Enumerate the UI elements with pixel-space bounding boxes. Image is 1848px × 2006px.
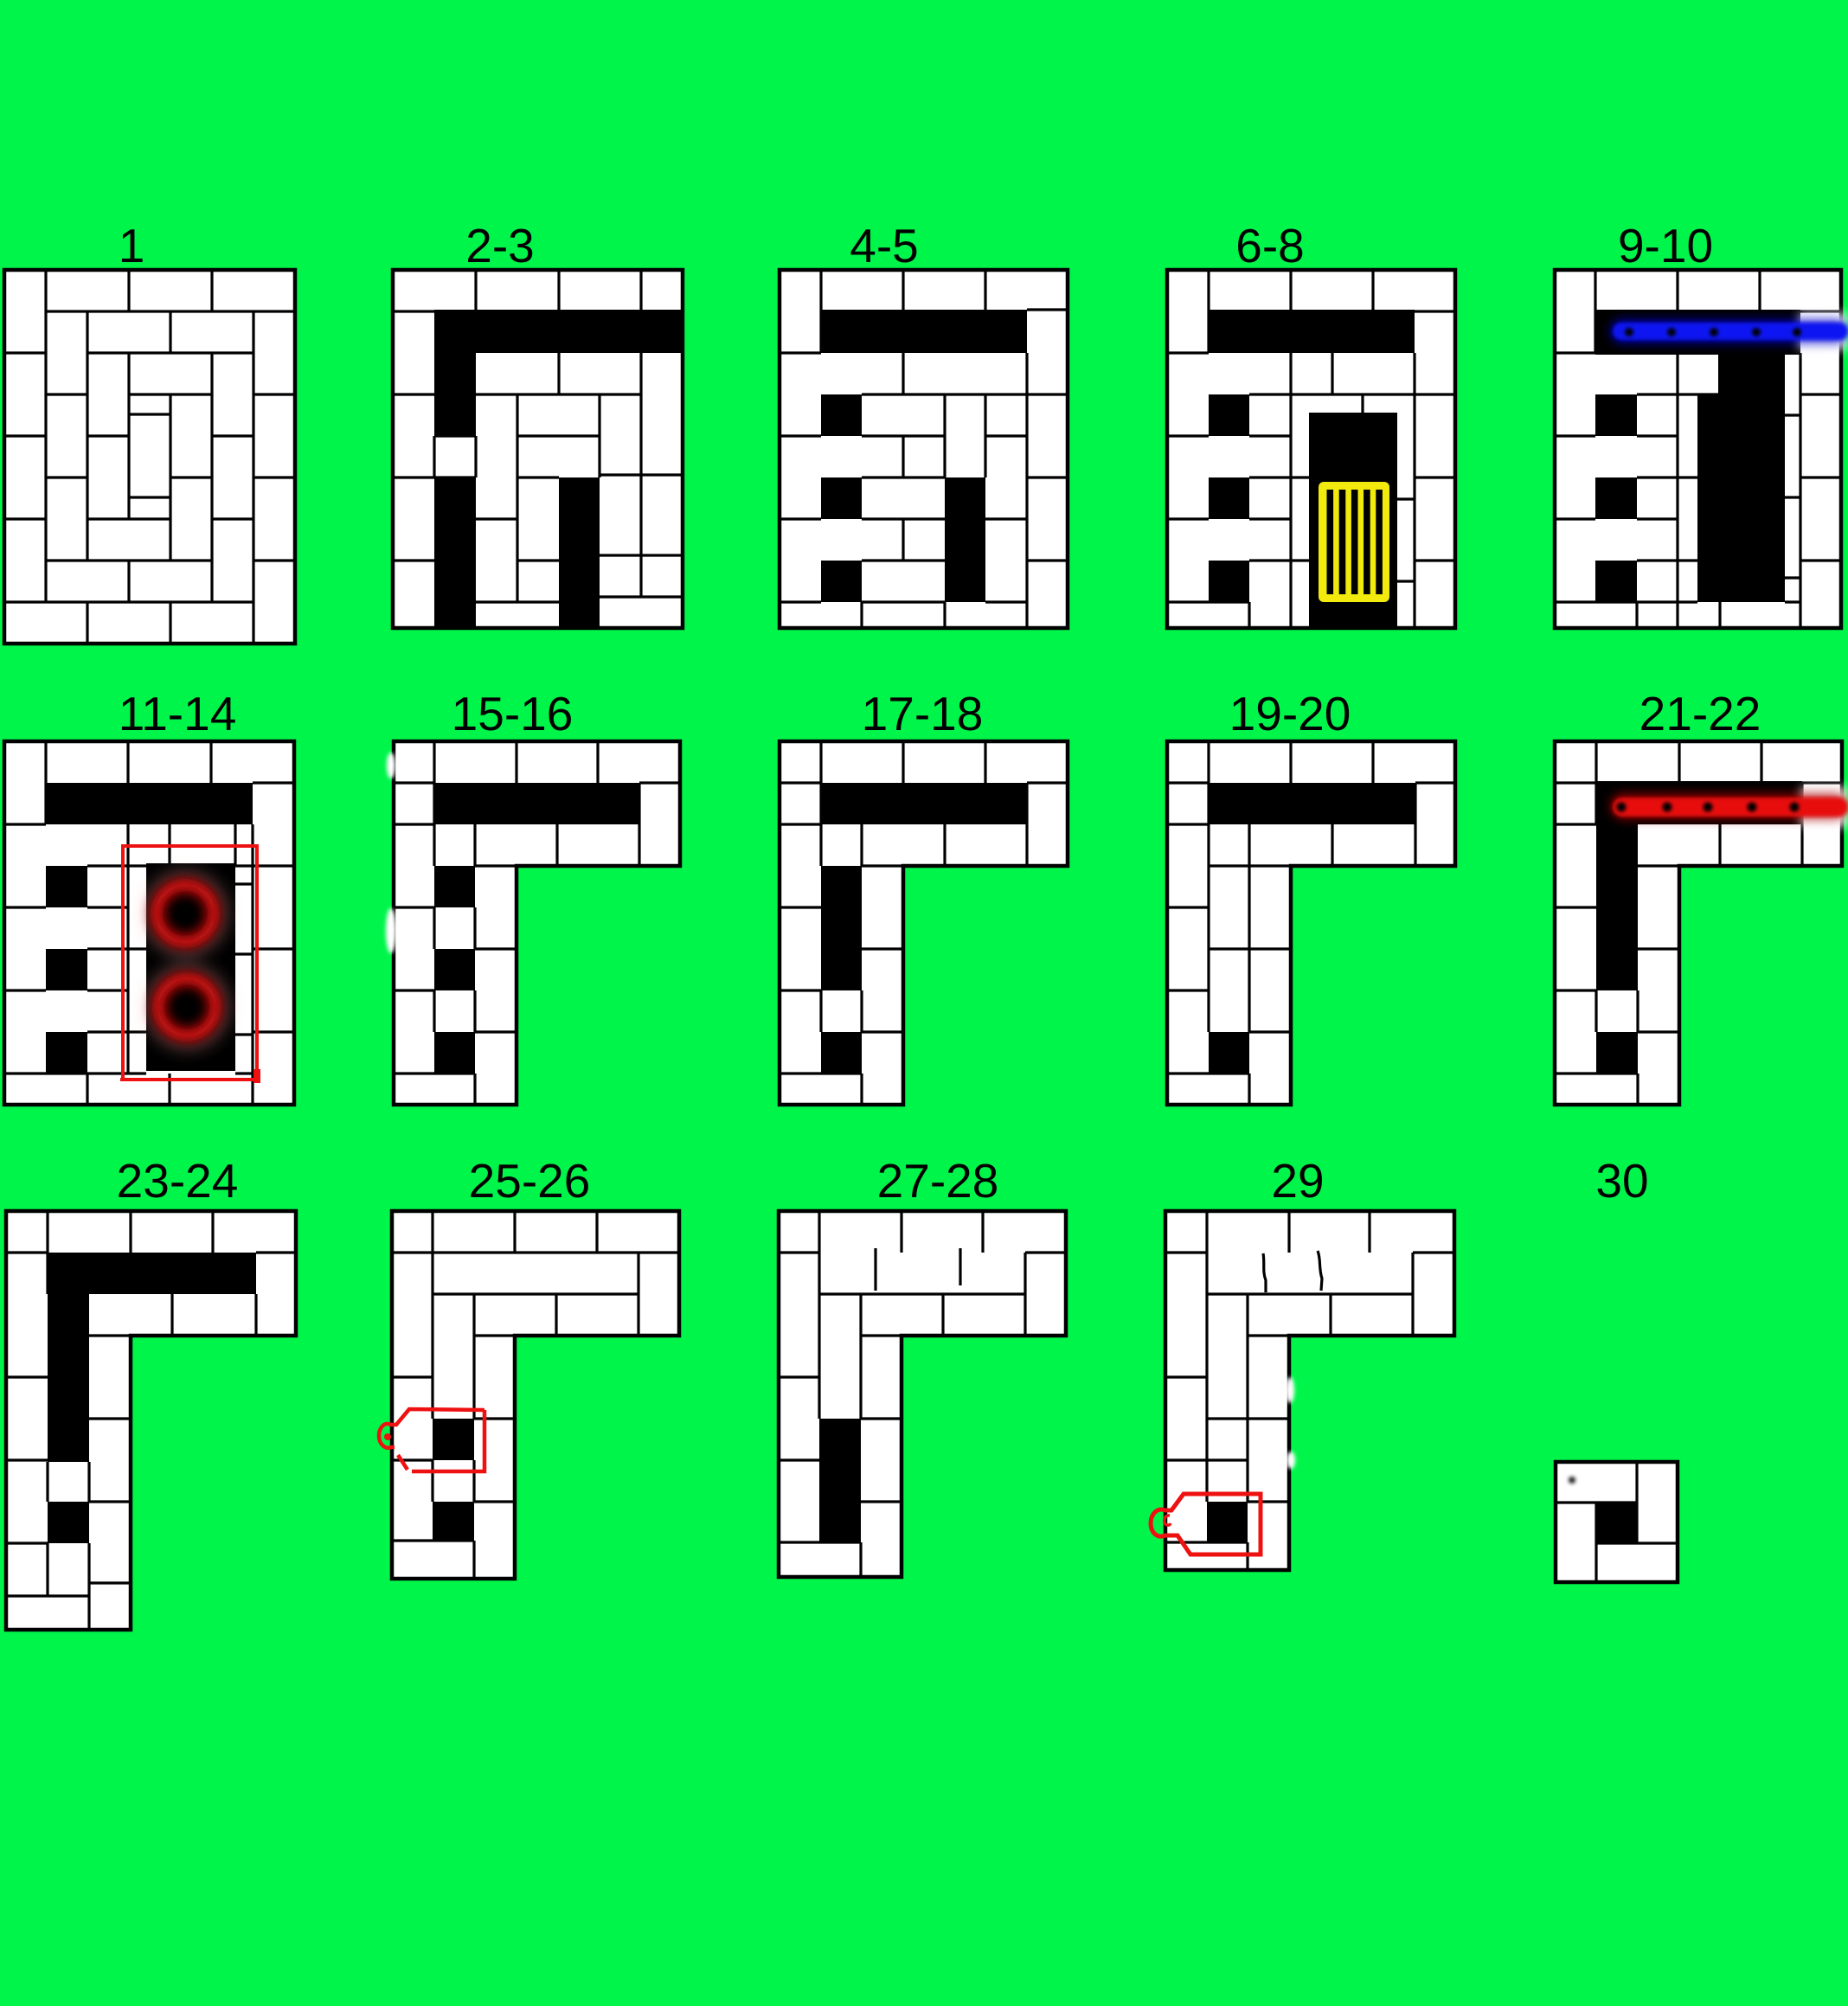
svg-text:30: 30	[1595, 1154, 1648, 1208]
svg-text:4-5: 4-5	[850, 219, 919, 272]
svg-text:21-22: 21-22	[1639, 687, 1761, 740]
svg-text:23-24: 23-24	[117, 1154, 239, 1208]
svg-text:29: 29	[1271, 1154, 1324, 1208]
svg-text:15-16: 15-16	[452, 687, 574, 740]
svg-text:19-20: 19-20	[1229, 687, 1351, 740]
svg-text:17-18: 17-18	[862, 687, 984, 740]
svg-text:25-26: 25-26	[469, 1154, 591, 1208]
svg-text:1: 1	[119, 219, 145, 272]
svg-text:27-28: 27-28	[877, 1154, 999, 1208]
svg-text:11-14: 11-14	[119, 687, 237, 740]
svg-text:2-3: 2-3	[465, 219, 535, 272]
svg-text:6-8: 6-8	[1235, 219, 1305, 272]
svg-text:9-10: 9-10	[1618, 219, 1713, 272]
